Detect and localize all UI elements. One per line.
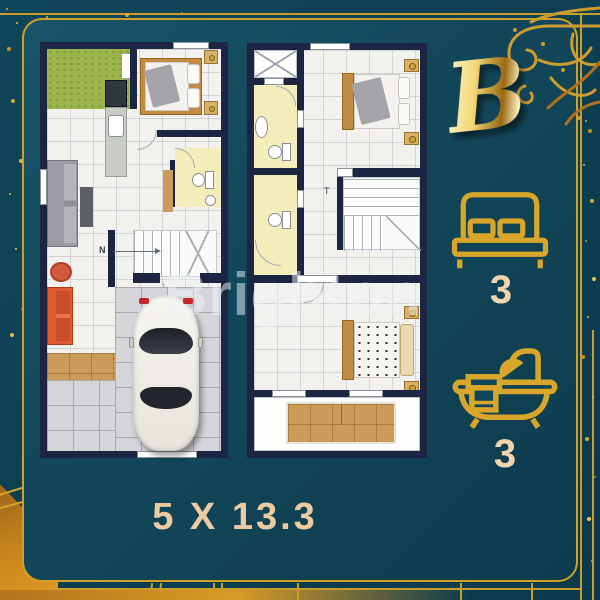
north-indicator: N xyxy=(99,245,169,259)
window xyxy=(272,390,306,397)
upper-floor-plan: T xyxy=(247,43,427,458)
bed-frame xyxy=(342,73,354,130)
balcony-deck xyxy=(286,402,396,444)
nightstand xyxy=(404,59,419,72)
gold-speckles-left xyxy=(6,8,8,10)
garage-floor xyxy=(47,380,115,451)
north-arrow-head xyxy=(155,248,161,254)
stairs xyxy=(343,177,420,250)
interior-wall xyxy=(297,50,304,277)
gray-sofa xyxy=(47,160,78,247)
toilet xyxy=(282,143,291,161)
unit-dimensions: 5 X 13.3 xyxy=(118,496,352,539)
void-shaft xyxy=(254,50,297,78)
interior-wall xyxy=(157,130,221,137)
door-gap xyxy=(297,110,304,128)
bathroom-sink xyxy=(205,195,216,206)
stair-treads xyxy=(344,178,419,216)
orange-bottom-gradient xyxy=(0,590,470,600)
bathroom-sink xyxy=(255,116,268,138)
bed-pillow xyxy=(398,103,410,125)
stairs-landing xyxy=(386,216,421,251)
stair-label: T xyxy=(324,186,330,196)
door-gap xyxy=(337,168,353,177)
nightstand xyxy=(204,50,218,64)
toilet xyxy=(192,173,205,187)
door-gap xyxy=(297,190,304,208)
coffee-table xyxy=(80,187,93,227)
bed-pillow xyxy=(187,64,200,84)
garage-gate xyxy=(137,451,197,458)
unit-badge: B xyxy=(441,40,570,148)
north-label: N xyxy=(99,245,106,255)
interior-wall xyxy=(254,168,297,175)
north-arrow-line xyxy=(113,251,157,252)
car-mirror xyxy=(198,337,203,348)
interior-wall xyxy=(133,273,160,283)
round-side-table xyxy=(50,262,72,282)
brand-watermark: Brighton xyxy=(164,260,444,329)
bathroom-count: 3 xyxy=(483,432,527,477)
window xyxy=(349,390,383,397)
terrace-deck xyxy=(47,353,117,380)
toilet xyxy=(282,211,291,229)
bathtub-icon xyxy=(448,340,562,432)
bed-icon xyxy=(442,186,558,270)
ground-floor-plan: N xyxy=(40,42,228,458)
bed-mattress xyxy=(354,322,400,378)
balcony xyxy=(254,397,420,451)
car-taillight xyxy=(139,298,150,303)
bed-pillow xyxy=(400,324,414,376)
window xyxy=(264,78,284,85)
interior-wall xyxy=(130,49,137,109)
toilet xyxy=(268,213,282,227)
window xyxy=(310,43,350,50)
bedroom-count: 3 xyxy=(479,268,523,313)
nightstand xyxy=(404,132,419,145)
toilet xyxy=(268,145,282,159)
car-mirror xyxy=(129,337,134,348)
brochure-canvas: N xyxy=(0,0,600,600)
orange-sofa xyxy=(47,287,73,345)
cabinet xyxy=(163,170,173,212)
window xyxy=(173,42,209,49)
car-windshield xyxy=(139,328,193,355)
gold-frame-right-line-2 xyxy=(592,330,594,600)
bed-pillow xyxy=(187,88,200,108)
window xyxy=(40,169,47,205)
bed-frame xyxy=(342,320,354,380)
stair-treads xyxy=(344,216,386,251)
toilet xyxy=(205,171,214,189)
bed-pillow xyxy=(398,77,410,99)
kitchen-sink xyxy=(108,115,124,137)
stove xyxy=(105,80,127,107)
gold-tick xyxy=(531,583,533,600)
nightstand xyxy=(204,101,218,115)
